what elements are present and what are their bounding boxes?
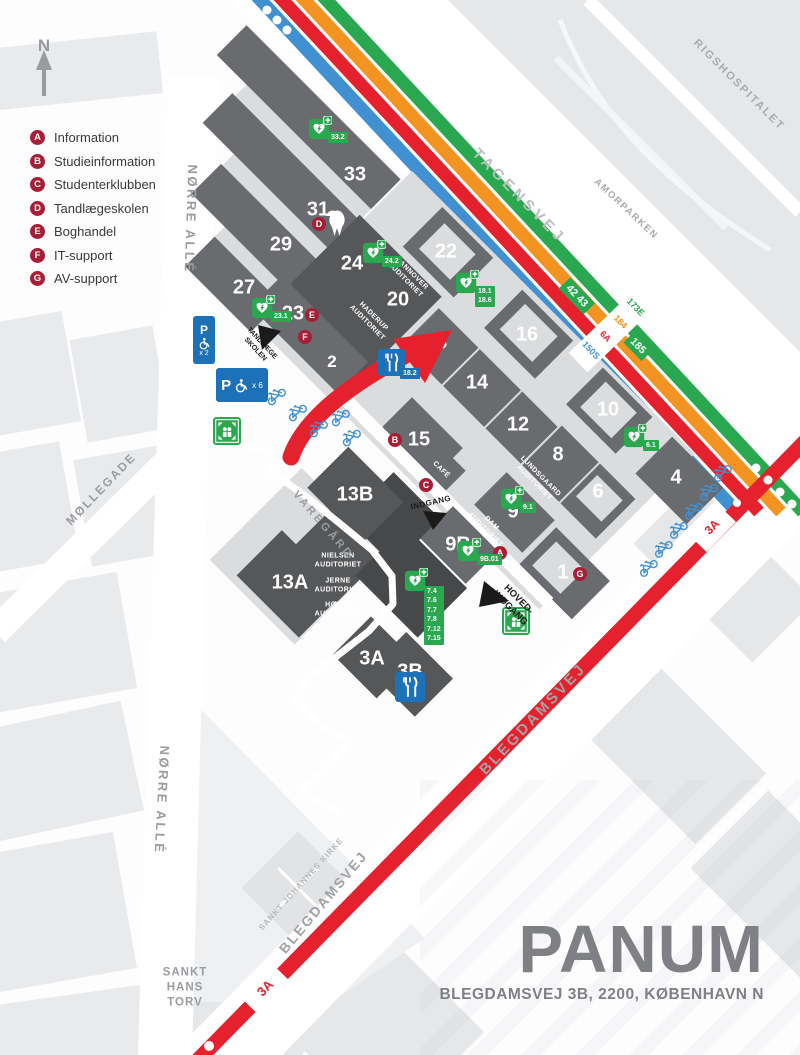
legend-letter-a: A (30, 130, 45, 145)
canteen-label: 18.2 (400, 368, 420, 379)
restaurant-icon (395, 672, 425, 702)
legend-item-it-support: F IT-support (30, 244, 156, 268)
aed-label: 6.1 (643, 440, 659, 451)
bike-parking-icons (243, 369, 732, 578)
marker-boghandel: E (305, 308, 319, 322)
bus-184: 184 (609, 311, 631, 333)
legend-item-av-support: G AV-support (30, 267, 156, 291)
legend: A Information B Studieinformation C Stud… (30, 126, 156, 291)
marker-tandlaegeskolen: D (312, 217, 326, 231)
legend-item-boghandel: E Boghandel (30, 220, 156, 244)
tooth-icon (326, 211, 345, 236)
panum-campus-map: 33 31 29 27 24 22 20 23 2 18 16 14 12 15… (0, 0, 800, 1055)
legend-label-d: Tandlægeskolen (54, 201, 149, 216)
map-title-block: PANUM BLEGDAMSVEJ 3B, 2200, KØBENHAVN N (439, 916, 764, 1004)
parking-p: P (200, 323, 208, 337)
legend-label-c: Studenterklubben (54, 177, 156, 192)
address: BLEGDAMSVEJ 3B, 2200, KØBENHAVN N (439, 986, 764, 1004)
marker-it-support: F (298, 330, 312, 344)
parking-p: P (221, 377, 231, 394)
legend-item-studenterklubben: C Studenterklubben (30, 173, 156, 197)
aed-label: 24.2 (382, 256, 402, 267)
legend-letter-g: G (30, 271, 45, 286)
legend-label-f: IT-support (54, 248, 113, 263)
bus-150s: 150S (580, 339, 602, 361)
legend-item-information: A Information (30, 126, 156, 150)
legend-letter-e: E (30, 224, 45, 239)
assembly-point-icon (213, 417, 241, 445)
legend-label-b: Studieinformation (54, 154, 155, 169)
legend-item-studieinformation: B Studieinformation (30, 150, 156, 174)
compass-north-label: N (38, 36, 50, 56)
legend-label-a: Information (54, 130, 119, 145)
legend-letter-c: C (30, 177, 45, 192)
bus-6a: 6A (595, 325, 617, 347)
aed-label: 9B.01 (477, 554, 502, 565)
wheelchair-icon (198, 337, 211, 350)
aed-label: 18.1 18.6 (475, 286, 495, 307)
parking-count: x 2 (199, 350, 208, 357)
indgang-entrance-icon (423, 511, 447, 530)
aed-label: 7.4 7.6 7.7 7.8 7.12 7.15 (424, 586, 444, 645)
legend-letter-d: D (30, 201, 45, 216)
parking-count: x 6 (252, 381, 263, 390)
parking-sign-x2: P x 2 (193, 316, 215, 364)
legend-letter-b: B (30, 154, 45, 169)
legend-label-g: AV-support (54, 271, 117, 286)
legend-item-tandlaegeskolen: D Tandlægeskolen (30, 197, 156, 221)
parking-sign-x6: P x 6 (216, 368, 268, 402)
wheelchair-icon (234, 378, 249, 393)
legend-label-e: Boghandel (54, 224, 116, 239)
aed-label: 9.1 (520, 502, 536, 513)
marker-studieinformation: B (388, 433, 402, 447)
page-title: PANUM (439, 916, 764, 983)
marker-studenterklubben: C (419, 478, 433, 492)
aed-label: 23.1 (271, 311, 291, 322)
legend-letter-f: F (30, 248, 45, 263)
aed-label: 33.2 (328, 132, 348, 143)
marker-av-support: G (573, 567, 587, 581)
bus-173e: 173E (624, 296, 646, 318)
